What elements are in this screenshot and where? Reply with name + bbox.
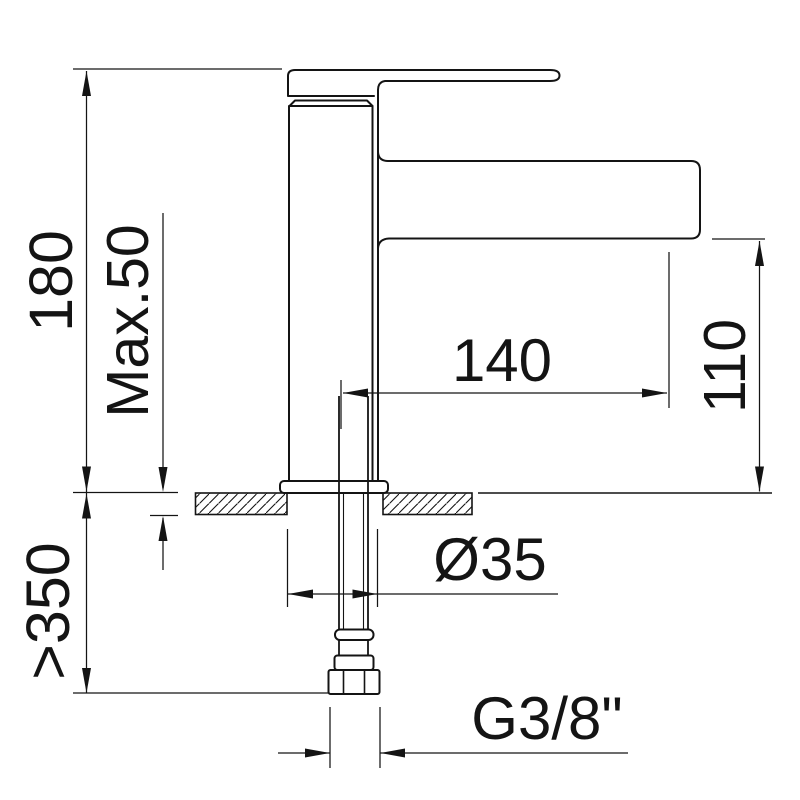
handle-lever-and-front-profile (288, 70, 560, 481)
arrow-180-bottom (82, 467, 91, 492)
deck-hatch-right (383, 493, 472, 515)
dim-label-connection-thread: G3/8" (471, 685, 622, 752)
arrow-d35-left (288, 590, 313, 599)
shank-pipe-inner (344, 494, 364, 629)
arrow-thread-left (305, 749, 330, 758)
dimension-lines (87, 71, 760, 753)
faucet-dimension-drawing: 180 Max.50 >350 140 110 Ø35 G3/8" (0, 0, 800, 800)
arrow-max50-bottom (159, 516, 168, 541)
dimension-arrows (82, 71, 764, 758)
cartridge-ring (290, 101, 373, 107)
dim-label-max-deck-thickness: Max.50 (95, 224, 161, 417)
spout (378, 152, 700, 249)
connection-nut (329, 670, 380, 694)
base-flange (280, 481, 388, 493)
extension-lines (73, 69, 765, 768)
dim-label-overall-height: 180 (17, 230, 85, 332)
arrow-140-left (343, 389, 368, 398)
dim-label-spout-height: 110 (692, 319, 758, 413)
arrow-110-top (755, 241, 764, 266)
technical-drawing-svg: 180 Max.50 >350 140 110 Ø35 G3/8" (0, 0, 800, 800)
arrow-140-right (642, 389, 667, 398)
arrow-thread-right (380, 749, 405, 758)
deck-hatch-left (196, 493, 288, 515)
arrow-350-top (82, 494, 91, 519)
faucet-outline (288, 70, 700, 481)
dim-label-spout-reach: 140 (452, 327, 552, 394)
shank-collar (335, 656, 374, 671)
arrow-350-bottom (82, 668, 91, 693)
shank-ring (335, 630, 374, 641)
arrow-max50-top (159, 467, 168, 492)
dim-label-body-diameter: Ø35 (433, 526, 546, 593)
arrow-180-top (82, 71, 91, 96)
arrow-d35-right (353, 590, 378, 599)
dim-label-min-clearance: >350 (14, 542, 82, 679)
arrow-110-bottom (755, 467, 764, 492)
mounting-deck (196, 493, 773, 515)
